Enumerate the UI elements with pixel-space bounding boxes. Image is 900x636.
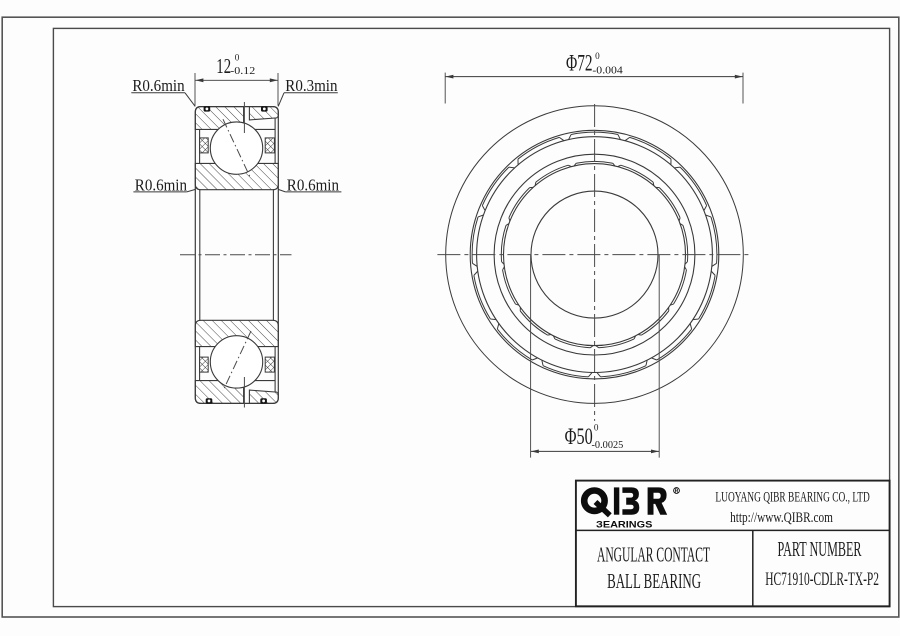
svg-text:R: R — [675, 489, 679, 495]
svg-text:R0.3min: R0.3min — [285, 76, 337, 95]
svg-text:-0.12: -0.12 — [230, 65, 255, 77]
svg-text:0: 0 — [594, 423, 599, 434]
svg-text:PART NUMBER: PART NUMBER — [778, 537, 862, 561]
svg-text:HC71910-CDLR-TX-P2: HC71910-CDLR-TX-P2 — [765, 570, 879, 590]
svg-text:0: 0 — [235, 53, 240, 64]
svg-text:-0.004: -0.004 — [592, 64, 623, 76]
svg-text:http://www.QIBR.com: http://www.QIBR.com — [730, 509, 833, 526]
svg-text:LUOYANG QIBR BEARING CO., LTD: LUOYANG QIBR BEARING CO., LTD — [715, 489, 869, 506]
svg-text:BALL BEARING: BALL BEARING — [607, 569, 701, 593]
svg-text:R0.6min: R0.6min — [132, 76, 184, 95]
svg-text:ЗEARINGS: ЗEARINGS — [596, 519, 652, 529]
svg-text:-0.0025: -0.0025 — [592, 440, 624, 451]
svg-text:12: 12 — [216, 54, 231, 78]
svg-text:ANGULAR CONTACT: ANGULAR CONTACT — [597, 543, 710, 567]
svg-text:0: 0 — [595, 51, 600, 62]
svg-text:Φ72: Φ72 — [566, 50, 593, 75]
svg-text:Φ50: Φ50 — [565, 424, 593, 449]
